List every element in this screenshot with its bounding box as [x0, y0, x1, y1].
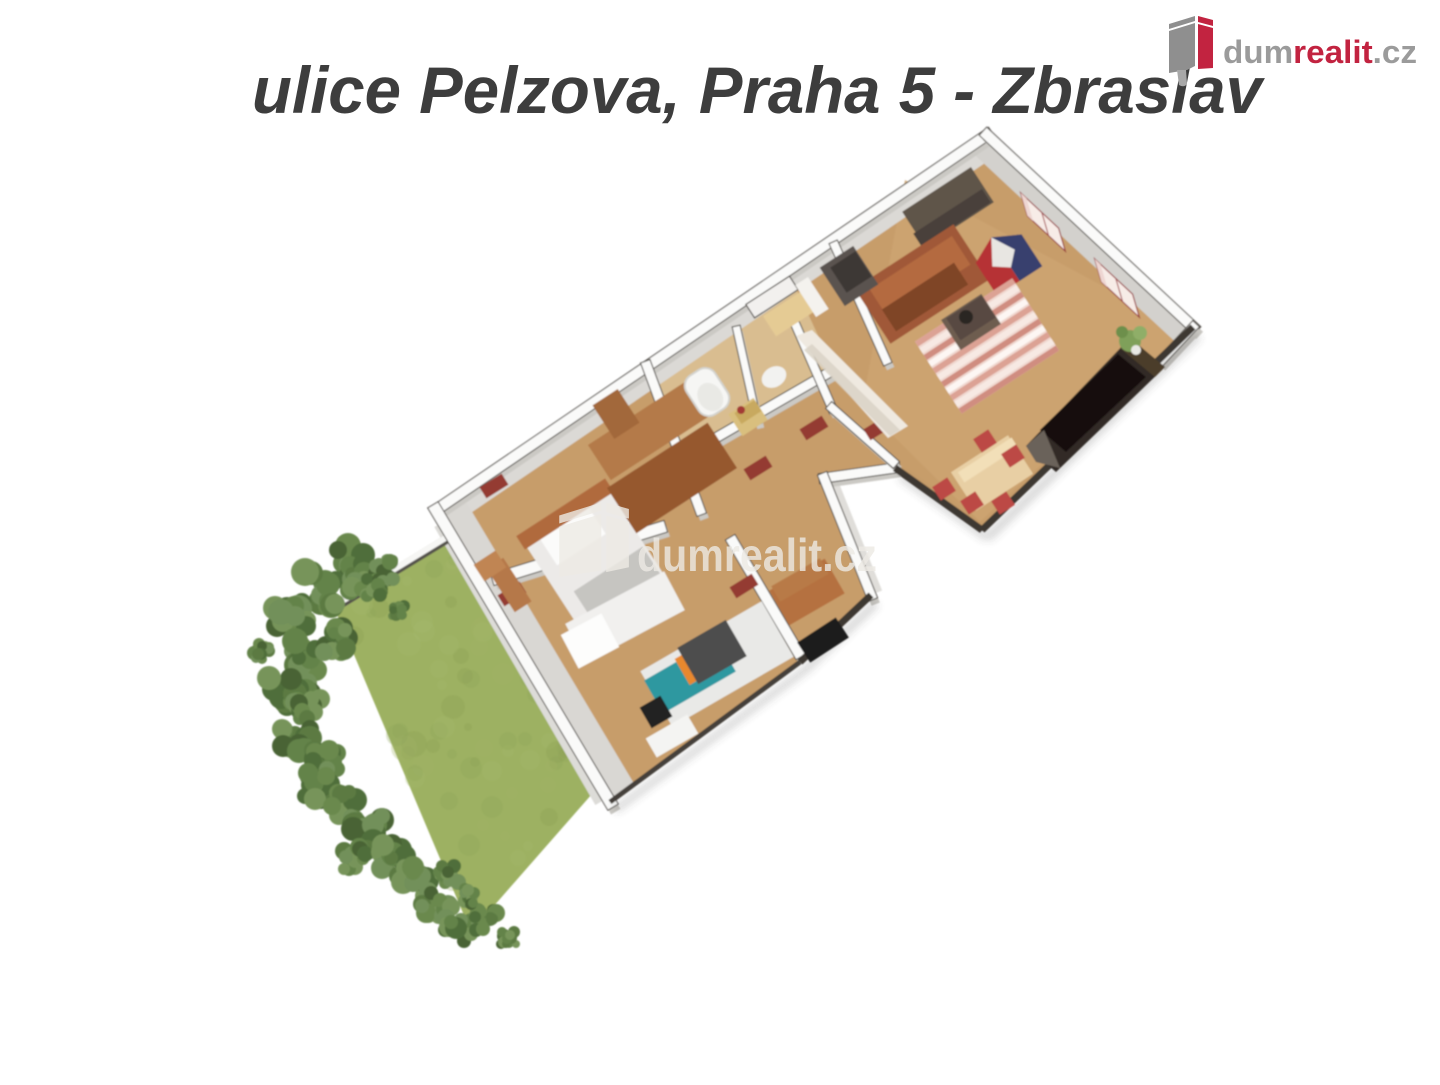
svg-text:dumrealit.cz: dumrealit.cz [1223, 34, 1417, 70]
svg-text:dumrealit.cz: dumrealit.cz [637, 529, 877, 581]
svg-text:ulice Pelzova, Praha 5 - Zbras: ulice Pelzova, Praha 5 - Zbraslav [252, 53, 1265, 127]
